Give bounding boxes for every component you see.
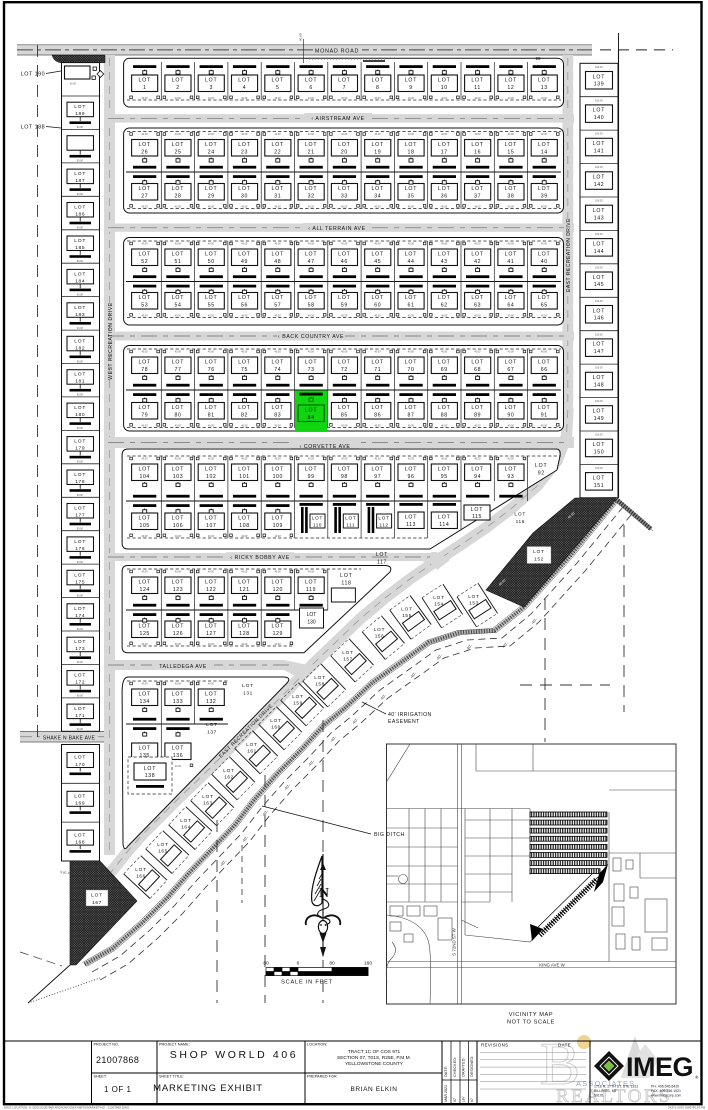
svg-text:40.00': 40.00' bbox=[141, 133, 148, 136]
svg-text:177: 177 bbox=[75, 513, 85, 519]
svg-text:1716 N. 27TH ST, STE 1312: 1716 N. 27TH ST, STE 1312 bbox=[594, 1085, 638, 1089]
svg-text:LOT: LOT bbox=[438, 515, 451, 521]
svg-text:LOT: LOT bbox=[205, 405, 218, 411]
svg-text:LOT: LOT bbox=[238, 142, 251, 148]
svg-text:40.00': 40.00' bbox=[408, 424, 415, 427]
svg-text:LOT: LOT bbox=[206, 722, 218, 728]
svg-text:40.00': 40.00' bbox=[141, 314, 148, 317]
svg-text:LOT: LOT bbox=[338, 467, 351, 473]
svg-text:LOT: LOT bbox=[338, 360, 351, 366]
svg-text:60.00': 60.00' bbox=[299, 32, 303, 41]
svg-text:75: 75 bbox=[241, 367, 248, 373]
svg-text:167: 167 bbox=[92, 900, 102, 906]
svg-text:40.00': 40.00' bbox=[408, 133, 415, 136]
svg-text:40.00': 40.00' bbox=[275, 535, 282, 538]
svg-text:183: 183 bbox=[75, 312, 85, 318]
svg-text:27: 27 bbox=[141, 194, 148, 200]
svg-text:65: 65 bbox=[541, 303, 548, 309]
svg-text:LOT: LOT bbox=[378, 516, 389, 521]
svg-text:LOT: LOT bbox=[371, 186, 384, 192]
svg-text:40.00': 40.00' bbox=[508, 350, 515, 353]
svg-text:PREPARED FOR:: PREPARED FOR: bbox=[307, 1075, 338, 1079]
svg-text:63: 63 bbox=[474, 303, 481, 309]
svg-text:LOT: LOT bbox=[533, 549, 545, 555]
svg-text:94: 94 bbox=[474, 474, 481, 480]
svg-text:92: 92 bbox=[538, 471, 545, 477]
svg-text:90.00': 90.00' bbox=[77, 293, 84, 296]
svg-text:40.00': 40.00' bbox=[275, 133, 282, 136]
svg-text:SHAKE N BAKE AVE: SHAKE N BAKE AVE bbox=[43, 735, 96, 741]
svg-text:TALLEDEGA AVE: TALLEDEGA AVE bbox=[159, 664, 207, 670]
svg-text:LOT: LOT bbox=[438, 252, 451, 258]
svg-text:40.00': 40.00' bbox=[275, 97, 282, 100]
svg-text:40.00': 40.00' bbox=[141, 570, 148, 573]
svg-text:2: 2 bbox=[176, 85, 180, 91]
svg-text:172: 172 bbox=[75, 680, 85, 686]
svg-text:LOT: LOT bbox=[438, 78, 451, 84]
svg-text:LOT: LOT bbox=[144, 766, 157, 772]
svg-text:LOT: LOT bbox=[272, 252, 285, 258]
svg-text:24: 24 bbox=[208, 150, 215, 156]
svg-text:160: 160 bbox=[364, 961, 372, 967]
svg-text:LOT: LOT bbox=[74, 755, 86, 761]
svg-text:LOT: LOT bbox=[74, 539, 86, 545]
svg-text:LOT: LOT bbox=[205, 624, 218, 630]
svg-text:71: 71 bbox=[374, 367, 381, 373]
svg-text:LOT: LOT bbox=[593, 308, 606, 314]
svg-text:40.00': 40.00' bbox=[241, 314, 248, 317]
svg-text:LOT: LOT bbox=[135, 867, 147, 872]
svg-text:LOT: LOT bbox=[172, 360, 185, 366]
svg-text:LOT: LOT bbox=[405, 360, 418, 366]
svg-text:176: 176 bbox=[75, 546, 85, 552]
svg-text:50: 50 bbox=[208, 259, 215, 265]
svg-text:40.00': 40.00' bbox=[175, 682, 182, 685]
svg-text:32: 32 bbox=[308, 194, 315, 200]
svg-text:40.00': 40.00' bbox=[408, 205, 415, 208]
svg-text:4: 4 bbox=[243, 85, 247, 91]
svg-text:156: 156 bbox=[375, 634, 385, 639]
svg-text:40.00': 40.00' bbox=[374, 205, 381, 208]
svg-text:LOT: LOT bbox=[305, 408, 318, 414]
svg-text:33: 33 bbox=[341, 194, 348, 200]
svg-text:174: 174 bbox=[75, 613, 85, 619]
svg-text:LOT: LOT bbox=[138, 516, 151, 522]
svg-text:144: 144 bbox=[594, 249, 604, 255]
svg-text:PH: 406.545.6420: PH: 406.545.6420 bbox=[651, 1085, 679, 1089]
svg-text:40.00': 40.00' bbox=[341, 350, 348, 353]
svg-text:40.00': 40.00' bbox=[308, 133, 315, 136]
svg-text:LOT: LOT bbox=[438, 360, 451, 366]
svg-text:178: 178 bbox=[75, 479, 85, 485]
svg-text:77: 77 bbox=[175, 367, 182, 373]
svg-text:61: 61 bbox=[408, 303, 415, 309]
svg-text:40.00': 40.00' bbox=[208, 535, 215, 538]
svg-text:LOT: LOT bbox=[338, 186, 351, 192]
svg-text:60: 60 bbox=[374, 303, 381, 309]
svg-text:LOT: LOT bbox=[593, 241, 606, 247]
svg-text:LOT: LOT bbox=[312, 516, 323, 521]
svg-text:LOCATION:: LOCATION: bbox=[307, 1043, 327, 1047]
svg-text:LOT: LOT bbox=[238, 78, 251, 84]
svg-text:40.00': 40.00' bbox=[441, 133, 448, 136]
svg-text:40.00': 40.00' bbox=[141, 350, 148, 353]
svg-text:BRIAN ELKIN: BRIAN ELKIN bbox=[350, 1086, 397, 1093]
svg-text:40.00': 40.00' bbox=[441, 97, 448, 100]
svg-text:LOT: LOT bbox=[505, 360, 518, 366]
svg-text:118: 118 bbox=[341, 581, 351, 587]
svg-text:20: 20 bbox=[341, 150, 348, 156]
svg-text:105: 105 bbox=[139, 523, 149, 529]
svg-text:LOT: LOT bbox=[172, 580, 185, 586]
svg-text:67: 67 bbox=[507, 367, 514, 373]
svg-text:130: 130 bbox=[307, 620, 316, 626]
svg-text:40.00': 40.00' bbox=[208, 97, 215, 100]
svg-text:38: 38 bbox=[507, 194, 514, 200]
svg-text:100.00': 100.00' bbox=[595, 166, 603, 169]
svg-text:LOT: LOT bbox=[593, 475, 606, 481]
svg-text:LOT: LOT bbox=[438, 186, 451, 192]
svg-text:LOT: LOT bbox=[538, 360, 551, 366]
svg-text:40.00': 40.00' bbox=[341, 133, 348, 136]
svg-text:LOT: LOT bbox=[138, 405, 151, 411]
svg-text:N: N bbox=[319, 885, 329, 900]
svg-text:S 72ND ST W: S 72ND ST W bbox=[452, 927, 457, 955]
svg-text:LOT: LOT bbox=[172, 624, 185, 630]
svg-text:28: 28 bbox=[175, 194, 182, 200]
svg-text:LOT: LOT bbox=[471, 405, 484, 411]
svg-text:40.00': 40.00' bbox=[141, 535, 148, 538]
svg-text:40.00': 40.00' bbox=[175, 457, 182, 460]
svg-text:141: 141 bbox=[594, 149, 604, 155]
svg-text:40.00': 40.00' bbox=[241, 205, 248, 208]
svg-text:LOT: LOT bbox=[202, 794, 214, 799]
svg-text:80: 80 bbox=[175, 413, 182, 419]
svg-text:‹ AIRSTREAM AVE: ‹ AIRSTREAM AVE bbox=[311, 116, 364, 122]
svg-text:LOT: LOT bbox=[305, 580, 318, 586]
svg-text:41: 41 bbox=[507, 259, 514, 265]
svg-text:40.00': 40.00' bbox=[441, 314, 448, 317]
svg-text:36: 36 bbox=[441, 194, 448, 200]
svg-text:153: 153 bbox=[469, 601, 479, 606]
svg-text:40.00': 40.00' bbox=[408, 242, 415, 245]
svg-text:www.imegcorp.com: www.imegcorp.com bbox=[651, 1093, 681, 1097]
svg-text:40: 40 bbox=[541, 259, 548, 265]
svg-text:LOT: LOT bbox=[172, 186, 185, 192]
svg-text:37: 37 bbox=[474, 194, 481, 200]
svg-text:LOT: LOT bbox=[338, 78, 351, 84]
svg-text:88: 88 bbox=[441, 413, 448, 419]
svg-text:40.00': 40.00' bbox=[541, 133, 548, 136]
svg-text:40.00': 40.00' bbox=[175, 424, 182, 427]
svg-text:106: 106 bbox=[173, 523, 183, 529]
svg-text:90.00': 90.00' bbox=[77, 160, 84, 163]
svg-text:LOT: LOT bbox=[538, 252, 551, 258]
svg-text:40.00': 40.00' bbox=[275, 457, 282, 460]
svg-text:LOT: LOT bbox=[505, 142, 518, 148]
svg-text:40.00': 40.00' bbox=[441, 457, 448, 460]
svg-text:LOT: LOT bbox=[272, 142, 285, 148]
svg-text:121: 121 bbox=[239, 587, 249, 593]
svg-text:LOT: LOT bbox=[438, 405, 451, 411]
svg-text:31: 31 bbox=[274, 194, 281, 200]
svg-text:LOT: LOT bbox=[270, 718, 282, 723]
svg-text:40.00': 40.00' bbox=[141, 643, 148, 646]
svg-text:LOT: LOT bbox=[305, 295, 318, 301]
svg-text:LOT: LOT bbox=[138, 580, 151, 586]
svg-text:166: 166 bbox=[136, 874, 146, 879]
svg-text:159: 159 bbox=[293, 701, 303, 706]
svg-text:115: 115 bbox=[472, 514, 482, 520]
svg-text:LOT: LOT bbox=[505, 405, 518, 411]
svg-text:40.00': 40.00' bbox=[241, 570, 248, 573]
svg-text:100.00': 100.00' bbox=[595, 233, 603, 236]
svg-text:57: 57 bbox=[274, 303, 281, 309]
svg-text:181: 181 bbox=[75, 379, 85, 385]
svg-text:LOT: LOT bbox=[172, 252, 185, 258]
svg-text:LOT: LOT bbox=[401, 607, 413, 612]
svg-text:DATE: DATE bbox=[558, 1042, 571, 1047]
svg-text:40.00': 40.00' bbox=[541, 242, 548, 245]
svg-text:40.00': 40.00' bbox=[541, 350, 548, 353]
svg-text:29: 29 bbox=[208, 194, 215, 200]
svg-text:LOT: LOT bbox=[74, 472, 86, 478]
svg-text:142: 142 bbox=[594, 182, 604, 188]
svg-text:LOT: LOT bbox=[172, 467, 185, 473]
svg-text:40.00': 40.00' bbox=[208, 350, 215, 353]
svg-text:LOT: LOT bbox=[246, 742, 258, 747]
svg-text:LOT: LOT bbox=[74, 171, 86, 177]
svg-text:LOT: LOT bbox=[74, 506, 86, 512]
svg-text:40.00': 40.00' bbox=[241, 643, 248, 646]
svg-text:40.00': 40.00' bbox=[341, 314, 348, 317]
svg-text:LOT: LOT bbox=[405, 78, 418, 84]
svg-text:40.00': 40.00' bbox=[275, 570, 282, 573]
svg-text:112: 112 bbox=[380, 523, 389, 528]
svg-text:LOT: LOT bbox=[593, 342, 606, 348]
svg-text:70: 70 bbox=[408, 367, 415, 373]
svg-text:40.00': 40.00' bbox=[141, 242, 148, 245]
svg-text:40.00': 40.00' bbox=[175, 133, 182, 136]
svg-text:127: 127 bbox=[206, 631, 216, 637]
svg-text:113: 113 bbox=[406, 522, 416, 528]
svg-text:LOT: LOT bbox=[238, 624, 251, 630]
svg-text:54: 54 bbox=[175, 303, 182, 309]
svg-text:55: 55 bbox=[208, 303, 215, 309]
svg-text:40.00': 40.00' bbox=[275, 643, 282, 646]
svg-text:DATE:: DATE: bbox=[443, 1066, 448, 1077]
svg-text:160: 160 bbox=[271, 725, 281, 730]
svg-text:81: 81 bbox=[208, 413, 215, 419]
svg-text:87: 87 bbox=[408, 413, 415, 419]
svg-text:40.00': 40.00' bbox=[508, 133, 515, 136]
svg-text:LOT: LOT bbox=[438, 295, 451, 301]
svg-text:LOT: LOT bbox=[272, 467, 285, 473]
svg-text:FAX: 406.256.1521: FAX: 406.256.1521 bbox=[651, 1089, 681, 1093]
svg-text:LOT: LOT bbox=[138, 746, 151, 752]
svg-text:40.00': 40.00' bbox=[175, 314, 182, 317]
svg-text:SHEET:: SHEET: bbox=[94, 1075, 107, 1079]
svg-text:LOT: LOT bbox=[471, 186, 484, 192]
svg-text:LOT: LOT bbox=[338, 405, 351, 411]
svg-text:LOT: LOT bbox=[433, 595, 445, 600]
svg-text:100.00': 100.00' bbox=[595, 66, 603, 69]
svg-text:DESIGNED:: DESIGNED: bbox=[469, 1056, 474, 1077]
svg-text:162: 162 bbox=[224, 775, 234, 780]
svg-text:LW: LW bbox=[461, 1096, 465, 1102]
svg-text:18: 18 bbox=[408, 150, 415, 156]
svg-text:90.00': 90.00' bbox=[77, 494, 84, 497]
svg-text:LOT: LOT bbox=[138, 186, 151, 192]
svg-text:EAST RECREATION DRIVE: EAST RECREATION DRIVE bbox=[566, 218, 572, 292]
svg-text:72: 72 bbox=[341, 367, 348, 373]
svg-text:LOT: LOT bbox=[74, 338, 86, 344]
svg-text:LOT: LOT bbox=[74, 238, 86, 244]
svg-text:90.00': 90.00' bbox=[77, 695, 84, 698]
svg-text:90.00': 90.00' bbox=[77, 561, 84, 564]
svg-text:100.00': 100.00' bbox=[595, 367, 603, 370]
svg-text:40.00': 40.00' bbox=[474, 242, 481, 245]
svg-text:LOT: LOT bbox=[505, 252, 518, 258]
svg-text:40.00': 40.00' bbox=[208, 682, 215, 685]
svg-text:40.00': 40.00' bbox=[508, 205, 515, 208]
svg-text:78: 78 bbox=[141, 367, 148, 373]
svg-text:LOT: LOT bbox=[593, 74, 606, 80]
svg-text:52: 52 bbox=[141, 259, 148, 265]
svg-text:40.00': 40.00' bbox=[208, 205, 215, 208]
svg-text:40.00': 40.00' bbox=[541, 314, 548, 317]
svg-text:15: 15 bbox=[507, 150, 514, 156]
svg-text:40.00': 40.00' bbox=[308, 457, 315, 460]
svg-text:120: 120 bbox=[273, 587, 283, 593]
svg-text:LOT 190: LOT 190 bbox=[21, 72, 45, 78]
svg-text:LOT: LOT bbox=[238, 295, 251, 301]
svg-text:40.00': 40.00' bbox=[508, 457, 515, 460]
svg-text:59: 59 bbox=[341, 303, 348, 309]
svg-text:WEST RECREATION DRIVE: WEST RECREATION DRIVE bbox=[108, 302, 114, 379]
svg-text:62: 62 bbox=[441, 303, 448, 309]
svg-text:40.00': 40.00' bbox=[374, 97, 381, 100]
svg-text:16: 16 bbox=[474, 150, 481, 156]
svg-text:40.00': 40.00' bbox=[175, 765, 182, 768]
svg-text:40.00': 40.00' bbox=[441, 350, 448, 353]
svg-text:LOT: LOT bbox=[338, 295, 351, 301]
svg-text:5: 5 bbox=[276, 85, 280, 91]
svg-text:86: 86 bbox=[374, 413, 381, 419]
svg-text:LOT: LOT bbox=[74, 794, 86, 800]
svg-text:LOT: LOT bbox=[172, 295, 185, 301]
svg-text:149: 149 bbox=[594, 416, 604, 422]
svg-text:LOT: LOT bbox=[405, 405, 418, 411]
svg-text:KING AVE W: KING AVE W bbox=[539, 962, 565, 967]
svg-text:40.00': 40.00' bbox=[508, 314, 515, 317]
svg-text:LOT: LOT bbox=[91, 893, 103, 899]
svg-text:163: 163 bbox=[203, 801, 213, 806]
svg-text:39: 39 bbox=[541, 194, 548, 200]
svg-text:MARKETING EXHIBIT: MARKETING EXHIBIT bbox=[153, 1083, 263, 1094]
svg-text:40.00': 40.00' bbox=[408, 97, 415, 100]
svg-text:LOT: LOT bbox=[272, 405, 285, 411]
svg-text:189: 189 bbox=[75, 111, 85, 117]
svg-text:131: 131 bbox=[243, 691, 253, 697]
svg-text:53: 53 bbox=[141, 303, 148, 309]
svg-text:186: 186 bbox=[75, 212, 85, 218]
svg-text:LOT: LOT bbox=[371, 295, 384, 301]
svg-text:40.00': 40.00' bbox=[308, 570, 315, 573]
svg-text:LOT: LOT bbox=[371, 360, 384, 366]
svg-text:LOT: LOT bbox=[307, 612, 317, 618]
svg-text:40.00': 40.00' bbox=[441, 242, 448, 245]
svg-text:LOT: LOT bbox=[205, 142, 218, 148]
svg-text:97: 97 bbox=[374, 474, 381, 480]
svg-text:107: 107 bbox=[206, 523, 216, 529]
svg-text:117: 117 bbox=[377, 560, 387, 566]
svg-text:45: 45 bbox=[374, 259, 381, 265]
svg-text:40.00': 40.00' bbox=[341, 205, 348, 208]
svg-text:LOT: LOT bbox=[205, 580, 218, 586]
svg-text:LOT: LOT bbox=[535, 463, 548, 469]
svg-text:90: 90 bbox=[507, 413, 514, 419]
svg-text:LOT: LOT bbox=[74, 832, 86, 838]
svg-text:125: 125 bbox=[139, 631, 149, 637]
svg-text:90.00': 90.00' bbox=[77, 528, 84, 531]
svg-text:93: 93 bbox=[507, 474, 514, 480]
svg-text:LOT: LOT bbox=[338, 142, 351, 148]
svg-text:133: 133 bbox=[173, 699, 183, 705]
svg-text:40.00': 40.00' bbox=[208, 570, 215, 573]
svg-text:114: 114 bbox=[439, 522, 449, 528]
svg-text:40.00': 40.00' bbox=[208, 314, 215, 317]
svg-text:LOT: LOT bbox=[471, 142, 484, 148]
svg-text:LOT: LOT bbox=[505, 295, 518, 301]
svg-text:137: 137 bbox=[207, 730, 217, 736]
svg-text:LOT: LOT bbox=[538, 186, 551, 192]
svg-text:82: 82 bbox=[241, 413, 248, 419]
svg-text:REVISIONS: REVISIONS bbox=[481, 1042, 509, 1047]
svg-text:40.00': 40.00' bbox=[175, 643, 182, 646]
svg-text:LOT: LOT bbox=[172, 746, 185, 752]
svg-text:40.00': 40.00' bbox=[175, 205, 182, 208]
svg-text:LOT: LOT bbox=[471, 78, 484, 84]
svg-text:100.00': 100.00' bbox=[595, 467, 603, 470]
svg-text:1 OF 1: 1 OF 1 bbox=[104, 1085, 132, 1094]
svg-text:138: 138 bbox=[145, 773, 155, 779]
svg-text:40.00': 40.00' bbox=[374, 457, 381, 460]
svg-text:169: 169 bbox=[75, 801, 85, 807]
svg-text:146: 146 bbox=[594, 316, 604, 322]
svg-text:40.00': 40.00' bbox=[241, 242, 248, 245]
svg-text:40.00': 40.00' bbox=[541, 97, 548, 100]
svg-text:111: 111 bbox=[346, 523, 355, 528]
svg-text:LOT: LOT bbox=[238, 405, 251, 411]
svg-text:40.00': 40.00' bbox=[408, 314, 415, 317]
svg-text:LOT: LOT bbox=[405, 252, 418, 258]
svg-text:LOT: LOT bbox=[471, 507, 484, 513]
svg-text:LOT: LOT bbox=[305, 360, 318, 366]
svg-text:129: 129 bbox=[273, 631, 283, 637]
svg-text:LOT: LOT bbox=[74, 372, 86, 378]
svg-text:LOT: LOT bbox=[471, 252, 484, 258]
svg-text:PROJECT NO.: PROJECT NO. bbox=[94, 1043, 119, 1047]
svg-text:40.00': 40.00' bbox=[308, 97, 315, 100]
svg-text:157: 157 bbox=[343, 657, 353, 662]
svg-text:51: 51 bbox=[175, 259, 182, 265]
svg-text:40.00': 40.00' bbox=[374, 133, 381, 136]
svg-text:LOT: LOT bbox=[305, 142, 318, 148]
svg-text:LOT: LOT bbox=[468, 594, 480, 599]
svg-text:136: 136 bbox=[173, 753, 183, 759]
svg-text:10: 10 bbox=[441, 85, 448, 91]
